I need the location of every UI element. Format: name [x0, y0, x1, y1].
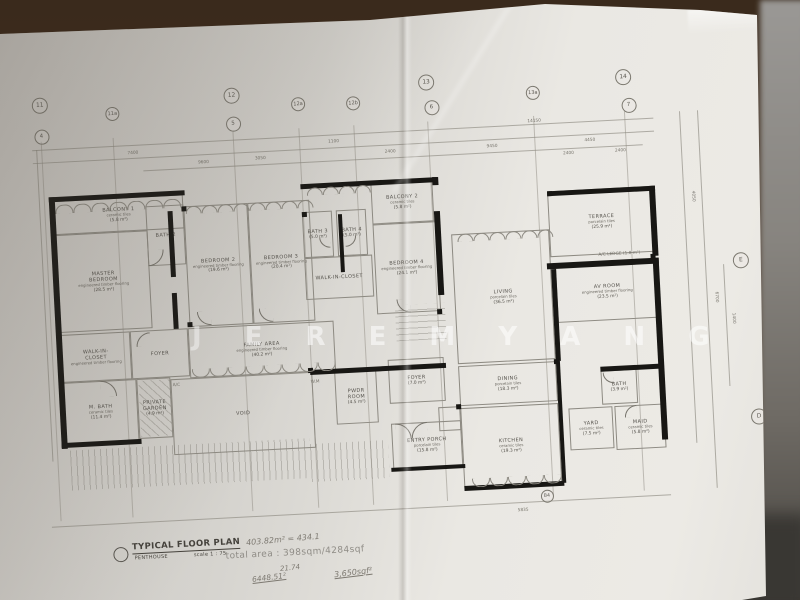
room-label: VOID: [236, 410, 250, 417]
room-label: DININGporcelain tiles(18.3 m²): [494, 375, 521, 392]
room-label: BEDROOM 2engineered timber flooring(19.6…: [193, 256, 245, 274]
window-arc-icon: [109, 201, 127, 211]
background-blur-band: [760, 0, 800, 600]
annotation-text: A/C LEDGE (1.8 m²): [598, 251, 640, 258]
grid-bubble: 11a: [105, 107, 120, 122]
window-arc-icon: [55, 204, 73, 214]
dimension-text: 1400: [731, 313, 737, 324]
dimension-text: 3050: [255, 156, 266, 162]
column-marker: [437, 309, 442, 314]
room-label: M. BATHceramic tiles(11.4 m²): [88, 403, 113, 420]
dimension-text: 14150: [527, 119, 541, 125]
window-arc-icon: [127, 200, 145, 210]
room-label: YARDceramic tiles(7.5 m²): [579, 420, 604, 437]
dimension-text: 5835: [518, 508, 529, 514]
photo-frame: TYPICAL FLOOR PLAN PENTHOUSEscale 1 : 75…: [0, 0, 800, 600]
room-area: (3.9 m²): [610, 387, 628, 393]
window-arc-icon: [163, 198, 181, 208]
window-arc-icon: [297, 200, 313, 209]
dimension-line: [679, 111, 697, 443]
room-region: [438, 406, 461, 431]
room-label: PRIVATEGARDEN(4.9 m²): [142, 399, 167, 418]
window-arc-icon: [91, 202, 109, 212]
room-label: LIVINGporcelain tiles(36.5 m²): [490, 288, 517, 305]
column-marker: [554, 359, 559, 364]
dimension-text: 6700: [713, 292, 719, 303]
annotation-text: W.M: [311, 379, 320, 384]
room-label: BEDROOM 3engineered timber flooring(20.4…: [255, 253, 307, 271]
plan-scale: scale 1 : 75: [194, 551, 227, 559]
column-marker: [456, 404, 461, 409]
grid-bubble: 12: [223, 87, 240, 104]
grid-bubble: 14: [615, 69, 632, 86]
dimension-text: 4050: [690, 191, 696, 202]
dimension-text: 2400: [385, 149, 396, 155]
room-label: AV ROOMengineered timber flooring(23.5 m…: [581, 282, 633, 300]
window-arc-icon: [354, 185, 370, 194]
room-area: (4.5 m²): [348, 399, 366, 405]
dimension-text: 9450: [486, 144, 497, 150]
grid-bubble: 7: [621, 97, 637, 113]
room-label: FOYER: [151, 350, 170, 357]
column-marker: [547, 191, 552, 196]
grid-bubble: 12a: [291, 97, 306, 112]
watermark-text: J E R E M Y A N G: [192, 322, 727, 352]
grid-bubble: B4: [540, 489, 554, 503]
title-block-circle-icon: [113, 547, 129, 563]
paper-sheet: TYPICAL FLOOR PLAN PENTHOUSEscale 1 : 75…: [0, 0, 800, 600]
room-name: VOID: [236, 410, 250, 417]
paper-corner-glare: [687, 6, 758, 34]
wall-segment: [172, 293, 179, 329]
dimension-text: 2400: [615, 148, 626, 154]
room-label: KITCHENceramic tiles(19.3 m²): [499, 437, 524, 454]
room-label: MASTERBEDROOMengineered timber flooring(…: [78, 269, 130, 293]
column-marker: [302, 212, 307, 217]
room-label: WALK-IN-CLOSETengineered timber flooring: [70, 348, 122, 367]
dimension-text: 2400: [563, 151, 574, 157]
dimension-text: 9600: [198, 160, 209, 166]
room-label: MAIDceramic tiles(5.8 m²): [628, 418, 653, 435]
room-name: FOYER: [151, 350, 170, 357]
grid-bubble: 11: [31, 97, 48, 114]
room-label: PWDRROOM(4.5 m²): [347, 387, 366, 405]
dimension-text: 4450: [584, 138, 595, 144]
window-arc-icon: [145, 199, 163, 209]
grid-bubble: 5: [225, 116, 241, 132]
room-label: TERRACEporcelain tiles(25.9 m²): [588, 213, 615, 230]
annotation-text: A/C: [173, 383, 181, 388]
grid-bubble: 13: [418, 74, 435, 91]
dimension-text: 7400: [127, 151, 138, 157]
paper-fold-crease: [398, 0, 412, 600]
grid-bubble: 4: [34, 129, 50, 145]
hatch-area: [310, 440, 390, 482]
plan-subtitle: PENTHOUSE: [134, 554, 168, 562]
column-marker: [650, 254, 655, 259]
grid-bubble: 13a: [525, 86, 540, 101]
column-marker: [432, 177, 437, 182]
window-arc-icon: [338, 185, 354, 194]
grid-bubble: 12b: [346, 96, 361, 111]
window-arc-icon: [73, 203, 91, 213]
dimension-line: [52, 494, 671, 527]
window-arc-icon: [306, 187, 322, 196]
window-arc-icon: [322, 186, 338, 195]
dimension-text: 1100: [328, 139, 339, 145]
grid-bubble: 6: [424, 99, 440, 115]
room-label: ENTRY PORCHporcelain tiles(15.8 m²): [407, 436, 447, 454]
grid-bubble: E: [732, 252, 749, 269]
